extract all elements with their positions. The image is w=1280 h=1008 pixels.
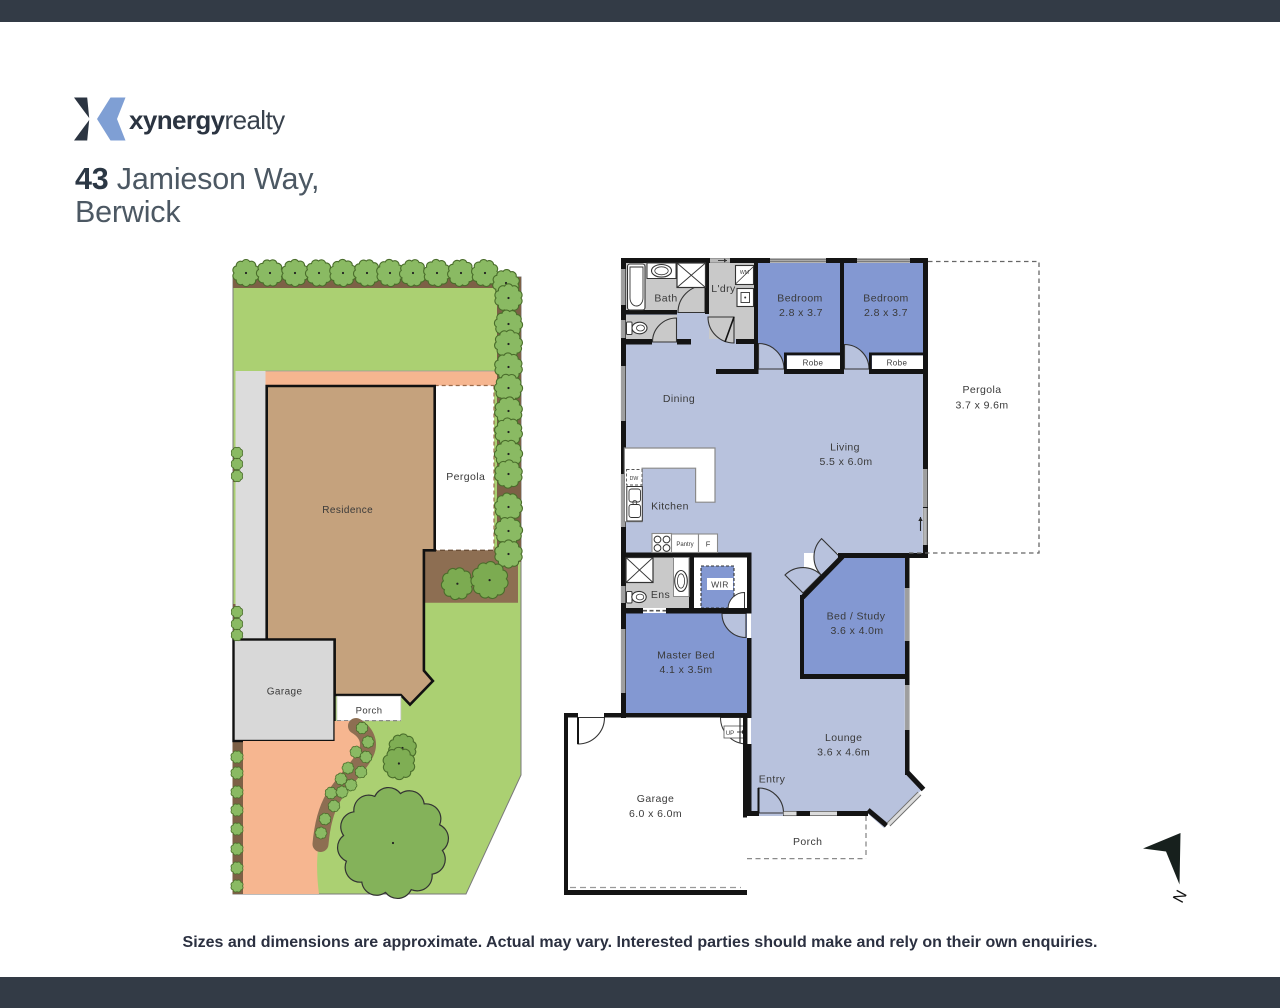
svg-text:L'dry: L'dry [711, 283, 736, 295]
svg-text:Living: Living [830, 442, 860, 454]
svg-text:Dining: Dining [663, 393, 695, 405]
svg-text:5.5 x 6.0m: 5.5 x 6.0m [819, 456, 872, 468]
svg-text:3.6 x 4.0m: 3.6 x 4.0m [830, 625, 883, 637]
svg-text:DW: DW [630, 476, 639, 482]
svg-text:Garage: Garage [267, 687, 303, 698]
svg-text:Ens: Ens [651, 589, 670, 601]
svg-text:WIR: WIR [711, 580, 729, 590]
svg-text:Master Bed: Master Bed [657, 650, 715, 662]
svg-text:Porch: Porch [356, 706, 383, 717]
svg-text:Pergola: Pergola [446, 471, 485, 483]
svg-text:Bedroom: Bedroom [777, 293, 822, 305]
svg-text:Kitchen: Kitchen [651, 501, 689, 513]
svg-text:3.7 x 9.6m: 3.7 x 9.6m [955, 400, 1008, 412]
svg-text:Bedroom: Bedroom [863, 293, 908, 305]
svg-text:Pergola: Pergola [963, 384, 1002, 396]
svg-text:Lounge: Lounge [825, 732, 862, 744]
svg-text:3.6 x 4.6m: 3.6 x 4.6m [817, 747, 870, 759]
svg-text:Garage: Garage [637, 793, 674, 805]
svg-text:F: F [706, 540, 711, 549]
svg-text:Bath: Bath [654, 293, 677, 305]
svg-text:Entry: Entry [759, 774, 786, 786]
svg-text:Robe: Robe [803, 359, 824, 368]
svg-text:Robe: Robe [887, 359, 908, 368]
svg-text:Bed / Study: Bed / Study [827, 611, 886, 623]
svg-text:Porch: Porch [793, 836, 822, 848]
svg-text:UP: UP [726, 731, 734, 737]
svg-text:Residence: Residence [322, 505, 373, 516]
svg-text:2.8 x 3.7: 2.8 x 3.7 [779, 307, 823, 319]
svg-text:6.0 x 6.0m: 6.0 x 6.0m [629, 808, 682, 820]
svg-text:N: N [1170, 888, 1190, 906]
svg-text:4.1 x 3.5m: 4.1 x 3.5m [659, 664, 712, 676]
svg-text:2.8 x 3.7: 2.8 x 3.7 [864, 307, 908, 319]
svg-text:Pantry: Pantry [676, 542, 693, 548]
